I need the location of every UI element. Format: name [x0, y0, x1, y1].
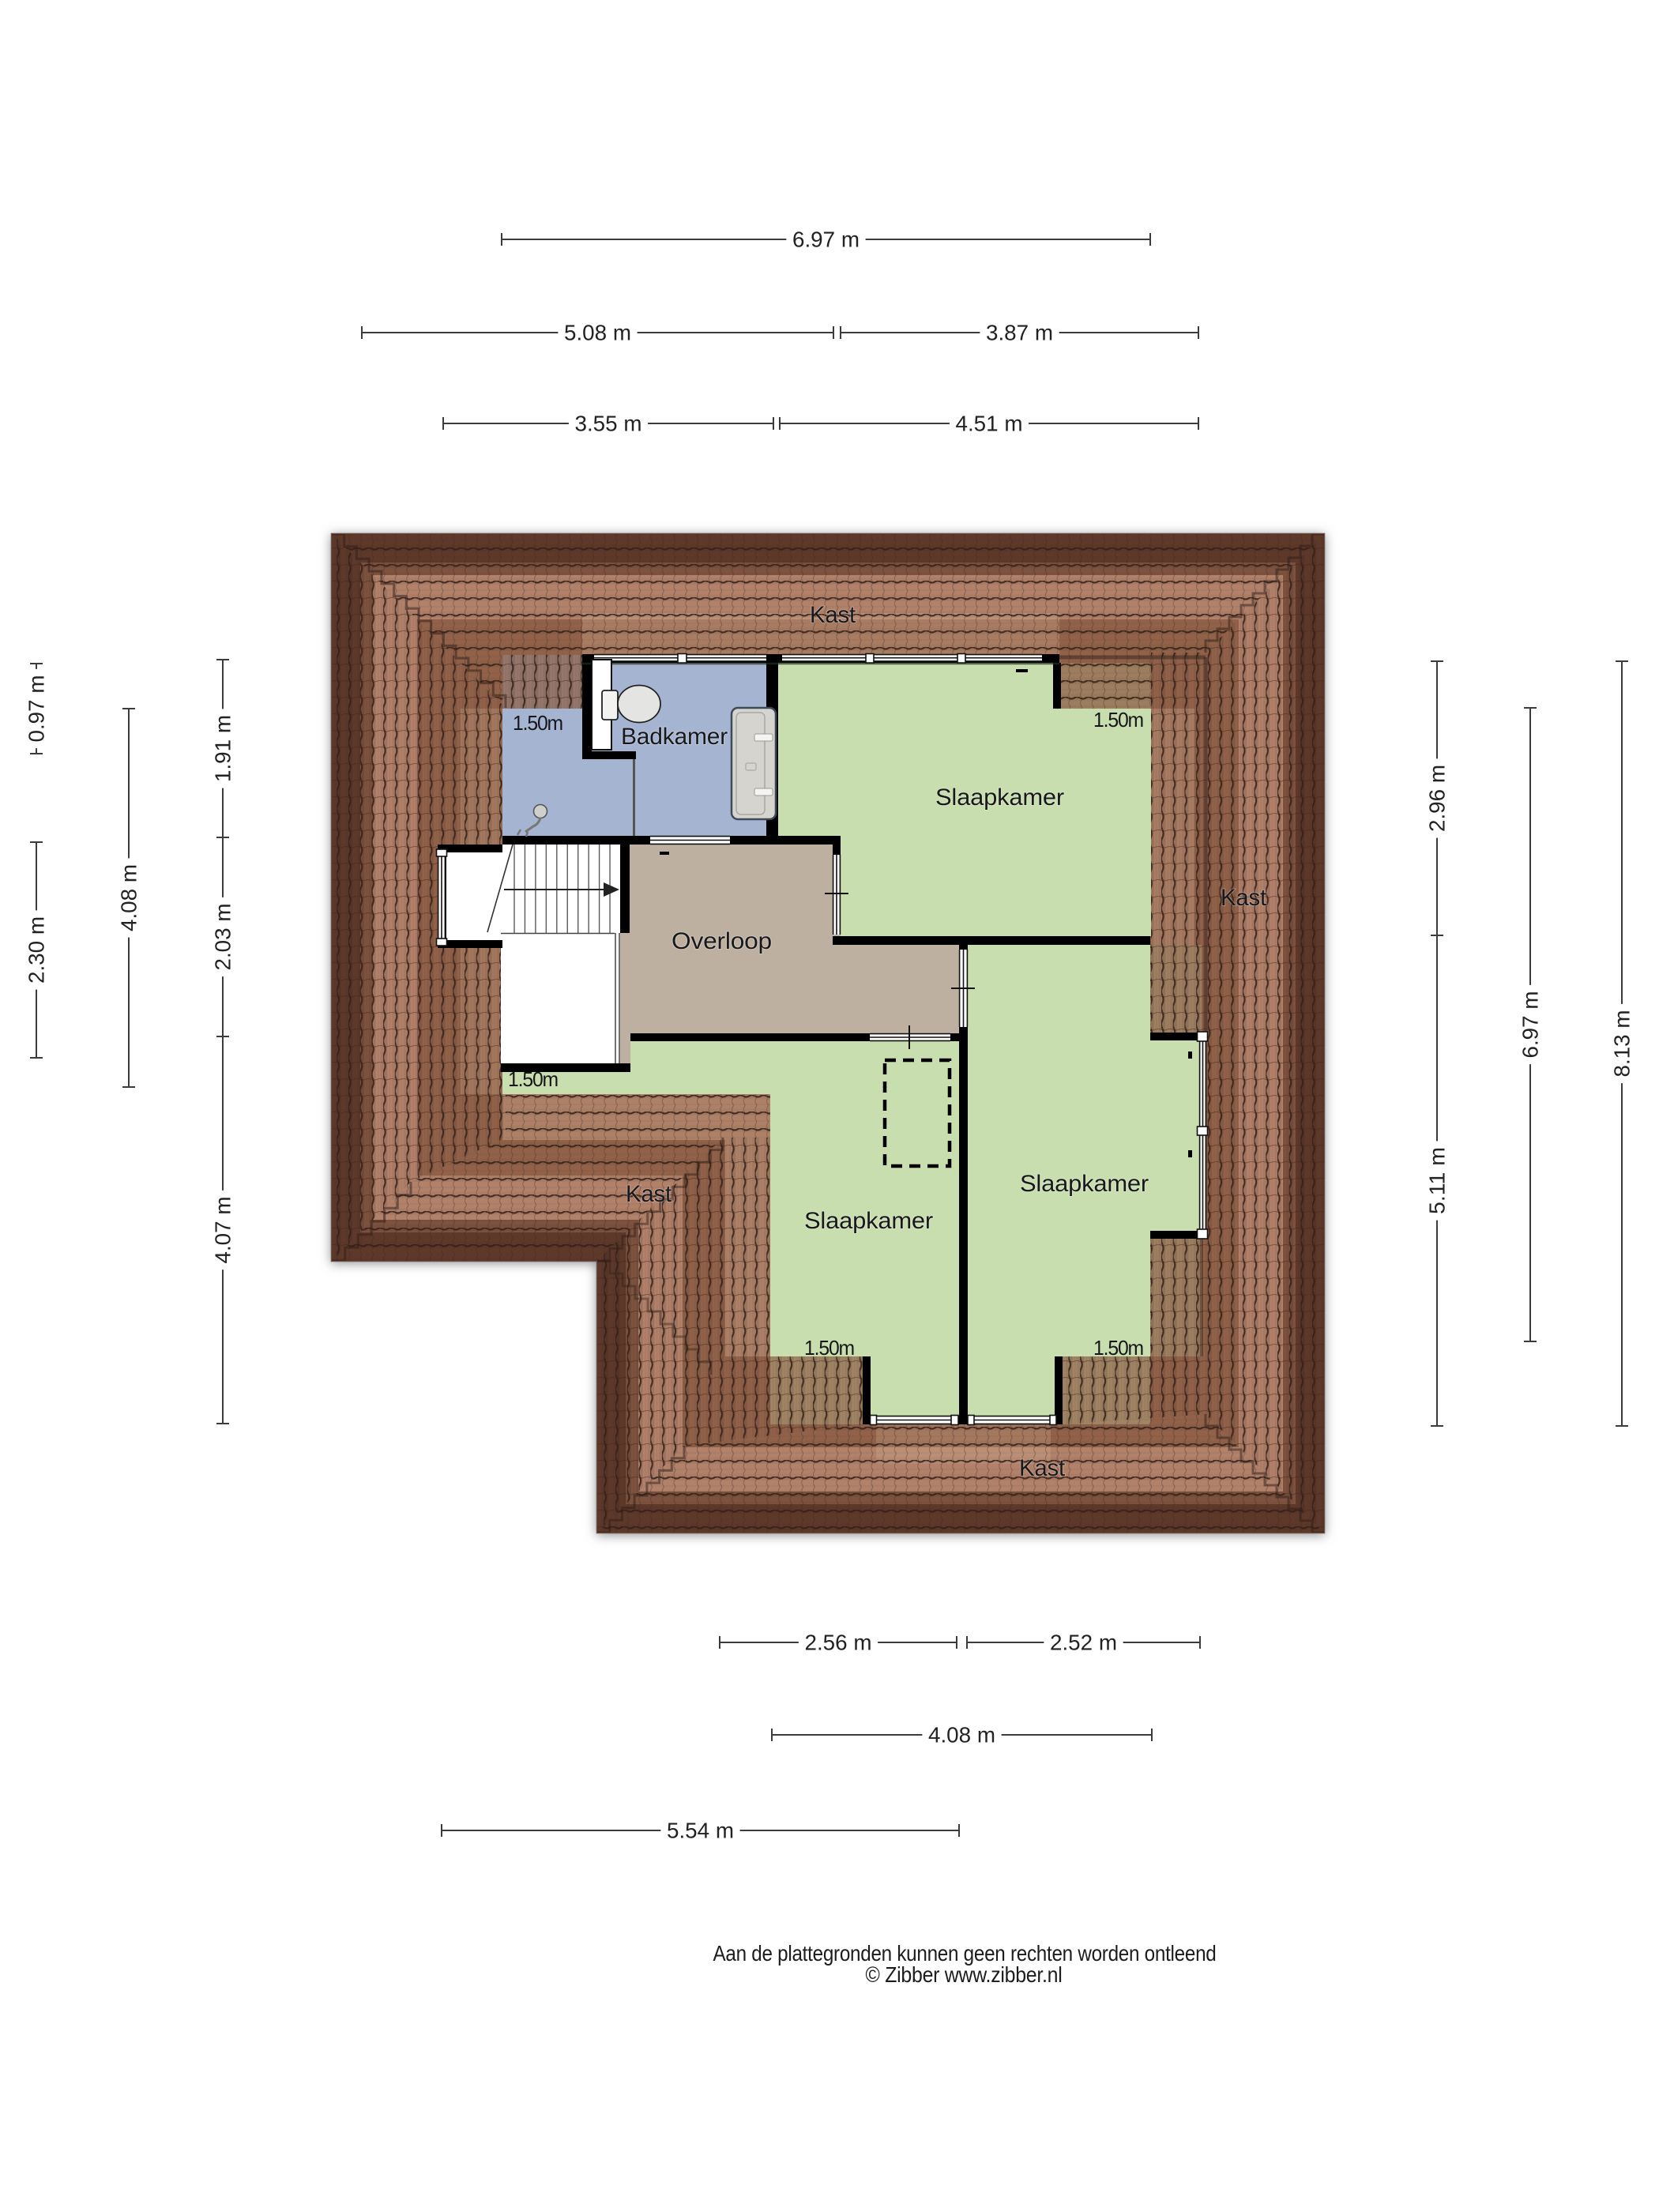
- svg-text:4.51 m: 4.51 m: [956, 412, 1023, 436]
- svg-text:6.97 m: 6.97 m: [792, 228, 860, 252]
- svg-text:1.50m: 1.50m: [1093, 1336, 1143, 1360]
- svg-text:1.50m: 1.50m: [513, 711, 562, 735]
- svg-text:1.91 m: 1.91 m: [211, 715, 235, 782]
- svg-text:2.56 m: 2.56 m: [805, 1631, 872, 1655]
- svg-text:3.87 m: 3.87 m: [986, 321, 1053, 345]
- svg-text:Badkamer: Badkamer: [621, 724, 728, 750]
- svg-text:5.11 m: 5.11 m: [1425, 1147, 1450, 1214]
- svg-text:2.52 m: 2.52 m: [1050, 1631, 1117, 1655]
- svg-text:Overloop: Overloop: [671, 928, 772, 954]
- svg-text:© Zibber www.zibber.nl: © Zibber www.zibber.nl: [866, 1962, 1063, 1987]
- svg-text:Slaapkamer: Slaapkamer: [804, 1208, 933, 1234]
- svg-text:Kast: Kast: [810, 602, 856, 628]
- svg-text:1.50m: 1.50m: [804, 1336, 854, 1360]
- svg-text:5.08 m: 5.08 m: [564, 321, 631, 345]
- svg-text:Slaapkamer: Slaapkamer: [935, 784, 1064, 811]
- svg-text:1.50m: 1.50m: [1093, 708, 1143, 732]
- svg-text:Kast: Kast: [626, 1181, 672, 1207]
- svg-text:2.96 m: 2.96 m: [1425, 765, 1450, 832]
- svg-text:5.54 m: 5.54 m: [667, 1819, 734, 1843]
- svg-text:4.08 m: 4.08 m: [928, 1723, 995, 1747]
- svg-text:8.13 m: 8.13 m: [1610, 1010, 1635, 1078]
- svg-text:2.03 m: 2.03 m: [211, 904, 235, 971]
- svg-text:3.55 m: 3.55 m: [575, 412, 642, 436]
- svg-text:0.97 m: 0.97 m: [24, 675, 49, 743]
- svg-text:6.97 m: 6.97 m: [1518, 991, 1543, 1059]
- svg-text:Kast: Kast: [1019, 1455, 1066, 1481]
- svg-text:4.07 m: 4.07 m: [211, 1197, 235, 1264]
- svg-text:4.08 m: 4.08 m: [117, 864, 141, 931]
- svg-text:1.50m: 1.50m: [508, 1067, 558, 1091]
- svg-text:2.30 m: 2.30 m: [24, 916, 49, 984]
- svg-text:Slaapkamer: Slaapkamer: [1020, 1171, 1149, 1197]
- svg-text:Kast: Kast: [1221, 885, 1267, 911]
